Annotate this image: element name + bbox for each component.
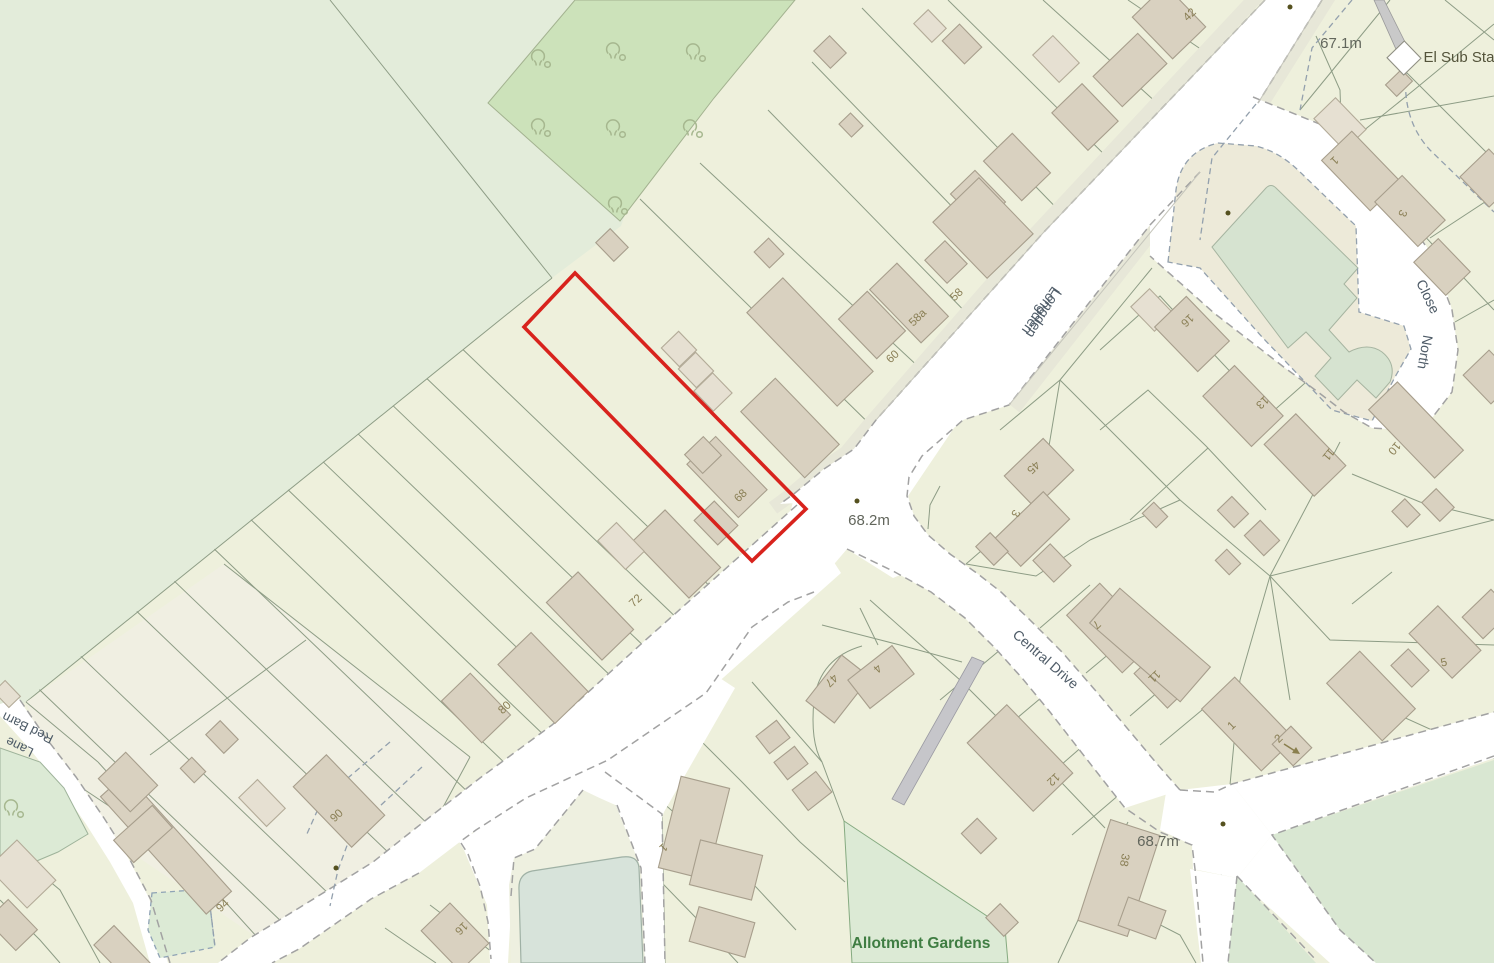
svg-text:El Sub Sta: El Sub Sta — [1424, 49, 1494, 66]
svg-text:38: 38 — [1117, 853, 1131, 868]
svg-text:68.2m: 68.2m — [848, 512, 890, 529]
svg-text:68.7m: 68.7m — [1137, 833, 1179, 850]
svg-text:Allotment Gardens: Allotment Gardens — [852, 935, 991, 952]
svg-text:67.1m: 67.1m — [1320, 35, 1362, 52]
